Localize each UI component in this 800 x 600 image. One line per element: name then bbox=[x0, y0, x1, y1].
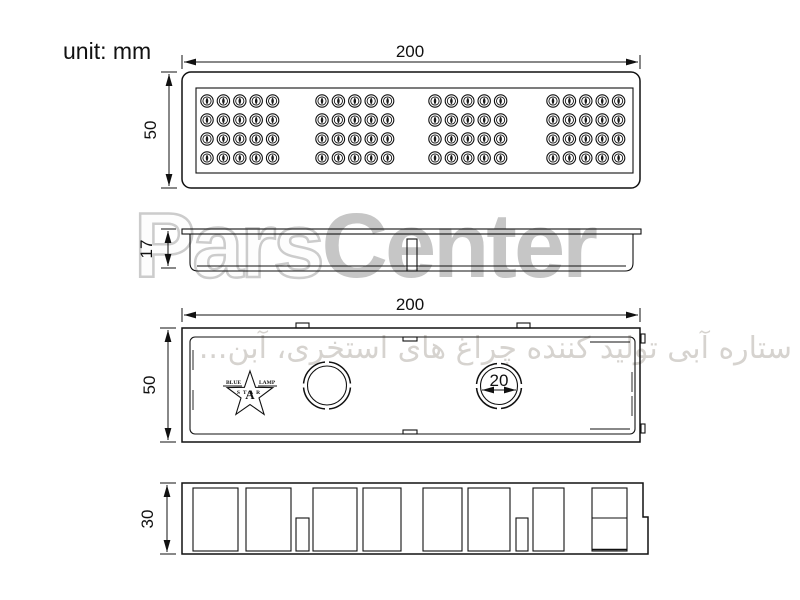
led bbox=[332, 95, 344, 107]
back-outer-frame bbox=[182, 328, 640, 442]
led bbox=[494, 95, 506, 107]
led bbox=[429, 114, 441, 126]
rib-opening bbox=[313, 488, 357, 551]
led bbox=[612, 95, 624, 107]
led bbox=[234, 95, 246, 107]
led bbox=[547, 152, 559, 164]
led bbox=[349, 95, 361, 107]
led bbox=[612, 114, 624, 126]
led bbox=[250, 133, 262, 145]
back-view-width-dim: 200 bbox=[396, 295, 424, 314]
back-view-height-dim: 50 bbox=[140, 376, 159, 395]
led bbox=[429, 95, 441, 107]
led bbox=[217, 133, 229, 145]
side-tab bbox=[641, 424, 645, 433]
bottom-view: 30 bbox=[138, 483, 648, 554]
led bbox=[547, 95, 559, 107]
rib-opening bbox=[246, 488, 291, 551]
led bbox=[381, 152, 393, 164]
rib-opening bbox=[468, 488, 510, 551]
led bbox=[201, 114, 213, 126]
led bbox=[478, 95, 490, 107]
led bbox=[250, 152, 262, 164]
led bbox=[217, 95, 229, 107]
led bbox=[234, 133, 246, 145]
led bbox=[234, 152, 246, 164]
led bbox=[596, 95, 608, 107]
led bbox=[563, 95, 575, 107]
led bbox=[612, 133, 624, 145]
inner-tab bbox=[403, 430, 417, 434]
led bbox=[612, 152, 624, 164]
logo-word-right: LAMP bbox=[259, 380, 276, 386]
top-view-width-dim: 200 bbox=[396, 42, 424, 61]
logo-letter: A bbox=[245, 387, 255, 402]
led bbox=[201, 133, 213, 145]
led bbox=[494, 152, 506, 164]
led bbox=[332, 114, 344, 126]
lamp-outer-frame bbox=[182, 72, 640, 188]
led bbox=[462, 95, 474, 107]
led bbox=[266, 133, 278, 145]
led bbox=[478, 133, 490, 145]
top-view-height-dim: 50 bbox=[141, 121, 160, 140]
led bbox=[596, 152, 608, 164]
side-view-lip bbox=[182, 229, 641, 234]
led bbox=[381, 95, 393, 107]
blue-lamp-star-logo: BLUE LAMP STAR A bbox=[223, 371, 277, 414]
inner-tab bbox=[403, 337, 417, 341]
led bbox=[580, 114, 592, 126]
led bbox=[445, 152, 457, 164]
led bbox=[445, 95, 457, 107]
led bbox=[349, 133, 361, 145]
cable-hole-right: 20 bbox=[475, 362, 524, 412]
led bbox=[217, 152, 229, 164]
led bbox=[266, 152, 278, 164]
led bbox=[250, 114, 262, 126]
bottom-outline bbox=[182, 483, 648, 554]
led bbox=[547, 114, 559, 126]
led bbox=[365, 95, 377, 107]
led bbox=[316, 95, 328, 107]
rib-opening bbox=[533, 488, 564, 551]
led bbox=[596, 133, 608, 145]
top-view: 200 50 bbox=[141, 42, 640, 188]
rib-opening bbox=[363, 488, 401, 551]
drawing-canvas: 200 50 17 200 bbox=[0, 0, 800, 600]
side-view-body bbox=[190, 234, 633, 271]
cable-hole-left bbox=[302, 360, 352, 411]
narrow-slot bbox=[516, 518, 528, 551]
led bbox=[349, 152, 361, 164]
led bbox=[494, 133, 506, 145]
led bbox=[266, 114, 278, 126]
led bbox=[266, 95, 278, 107]
narrow-slot bbox=[296, 518, 309, 551]
led bbox=[580, 152, 592, 164]
led bbox=[365, 133, 377, 145]
led bbox=[316, 133, 328, 145]
led bbox=[365, 152, 377, 164]
led bbox=[462, 133, 474, 145]
led bbox=[381, 114, 393, 126]
led bbox=[234, 114, 246, 126]
side-view-height-dim: 17 bbox=[137, 240, 156, 259]
back-inner-frame bbox=[190, 337, 635, 434]
led bbox=[349, 114, 361, 126]
led bbox=[316, 114, 328, 126]
led bbox=[563, 133, 575, 145]
led-grid bbox=[201, 95, 625, 164]
technical-drawing-page: unit: mm ParsCenter ستاره آبی تولید کنند… bbox=[0, 0, 800, 600]
led bbox=[332, 152, 344, 164]
led bbox=[563, 114, 575, 126]
led bbox=[478, 152, 490, 164]
hole-diameter-dim: 20 bbox=[490, 371, 509, 390]
led bbox=[580, 95, 592, 107]
led bbox=[580, 133, 592, 145]
led bbox=[429, 133, 441, 145]
rib-opening bbox=[423, 488, 462, 551]
led bbox=[494, 114, 506, 126]
led bbox=[462, 114, 474, 126]
logo-word-left: BLUE bbox=[226, 380, 241, 386]
rib-opening bbox=[193, 488, 238, 551]
led bbox=[332, 133, 344, 145]
led bbox=[478, 114, 490, 126]
led bbox=[316, 152, 328, 164]
back-view: 200 50 BLUE LAMP bbox=[140, 295, 645, 442]
led bbox=[563, 152, 575, 164]
led bbox=[250, 95, 262, 107]
led bbox=[596, 114, 608, 126]
led bbox=[429, 152, 441, 164]
led bbox=[445, 114, 457, 126]
bottom-view-height-dim: 30 bbox=[138, 510, 157, 529]
rib-opening bbox=[592, 488, 627, 551]
side-view: 17 bbox=[137, 229, 641, 271]
led bbox=[365, 114, 377, 126]
led bbox=[217, 114, 229, 126]
led bbox=[445, 133, 457, 145]
led bbox=[201, 152, 213, 164]
side-tab bbox=[641, 334, 645, 343]
led bbox=[547, 133, 559, 145]
led bbox=[381, 133, 393, 145]
led bbox=[462, 152, 474, 164]
led bbox=[201, 95, 213, 107]
